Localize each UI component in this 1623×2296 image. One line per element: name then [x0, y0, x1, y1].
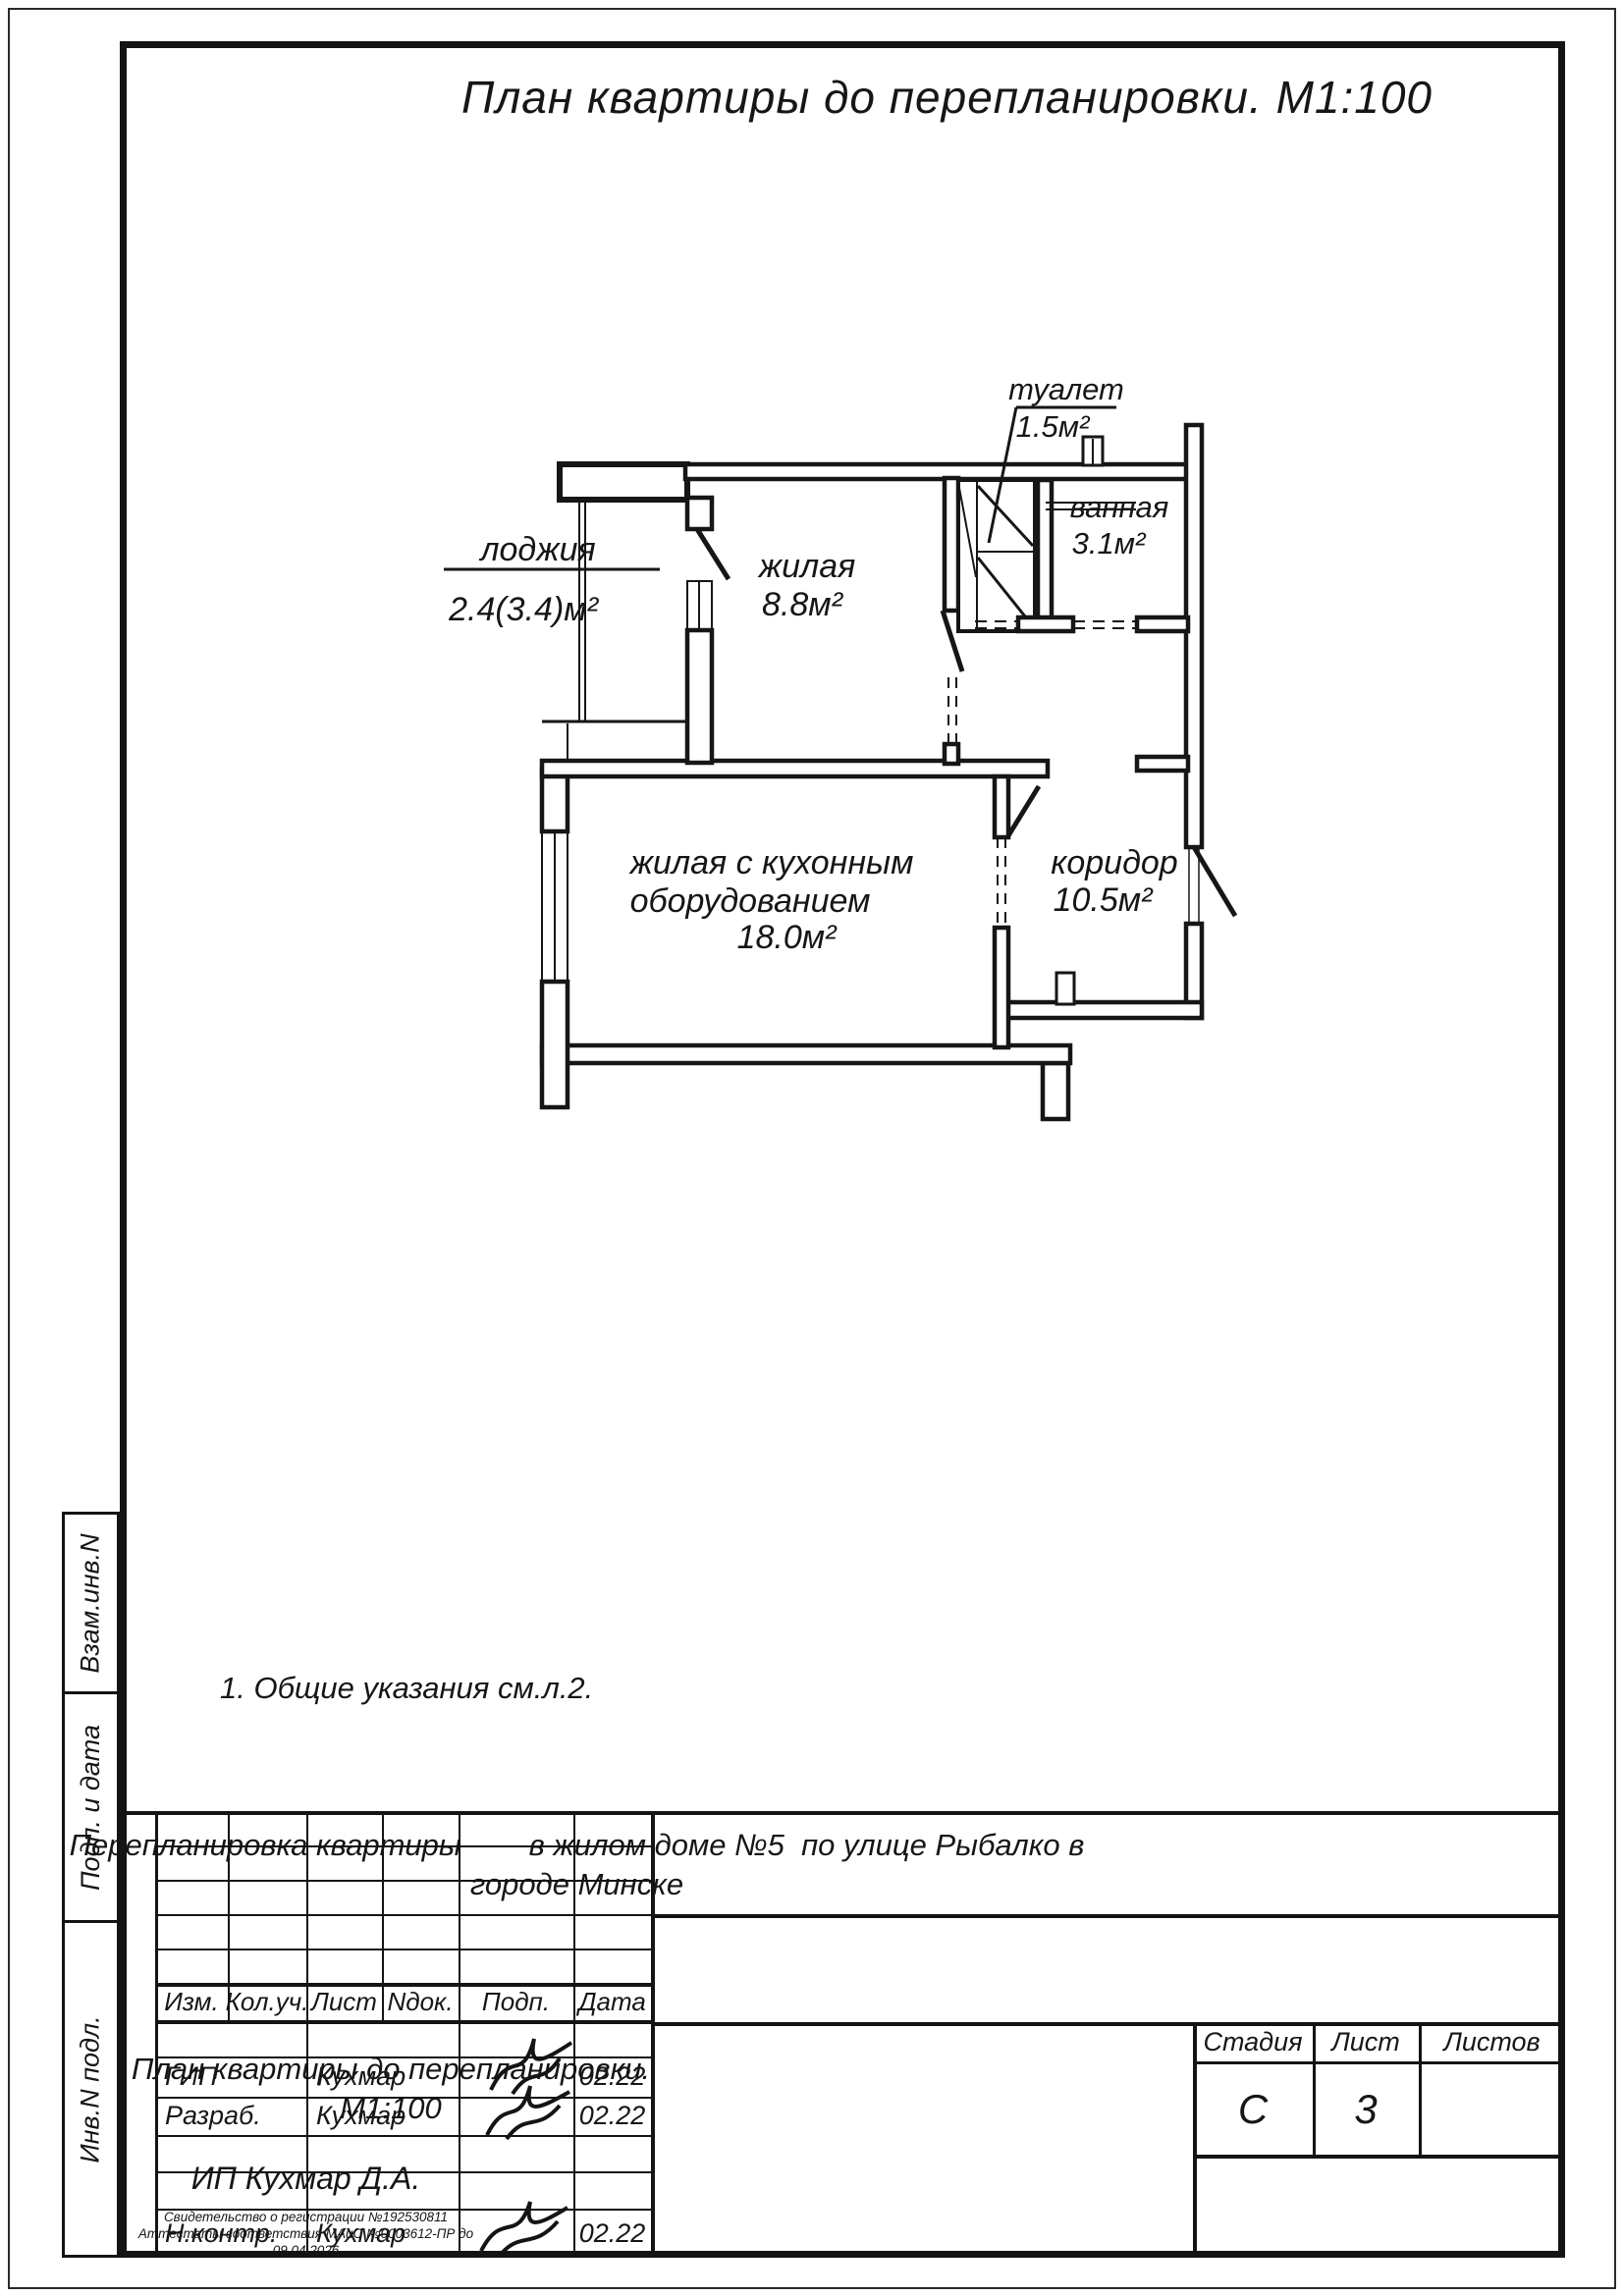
- row-razrab-date: 02.22: [573, 2097, 651, 2135]
- col-header-ndok: Nдок.: [382, 1983, 459, 2020]
- title-block: Изм. Кол.уч. Лист Nдок. Подп. Дата ГИП К…: [120, 1811, 1565, 2258]
- room-label-living-small: жилая: [757, 548, 856, 585]
- margin-box-podp: Подп. и дата: [62, 1691, 120, 1923]
- project-description: Перепланировка квартиры в жилом доме №5 …: [120, 1811, 1034, 1919]
- col-header-podp: Подп.: [459, 1983, 573, 2020]
- stage-value: С: [1193, 2064, 1313, 2155]
- col-header-koluch: Кол.уч.: [228, 1983, 306, 2020]
- row-nkontr-date: 02.22: [573, 2209, 651, 2258]
- row-gip-name: Кухмар: [306, 2056, 459, 2097]
- row-gip-role: ГИП: [155, 2056, 306, 2097]
- stage-header: Стадия: [1193, 2022, 1313, 2061]
- room-area-living-small: 8.8м²: [762, 586, 844, 623]
- row-gip-date: 02.22: [573, 2056, 651, 2097]
- room-label-living-kitchen-2: оборудованием: [630, 882, 871, 920]
- floor-plan-labels: лоджия 2.4(3.4)м² жилая 8.8м² туалет 1.5…: [448, 372, 1178, 956]
- sheets-value: [1419, 2064, 1565, 2155]
- sheet-value: 3: [1313, 2064, 1419, 2155]
- margin-box-inv: Инв.N подл.: [62, 1920, 120, 2258]
- margin-label-inv: Инв.N подл.: [76, 2015, 106, 2163]
- room-area-living-kitchen: 18.0м²: [737, 919, 838, 956]
- room-area-toilet: 1.5м²: [1016, 409, 1091, 444]
- col-header-izm: Изм.: [155, 1983, 228, 2020]
- signature-razrab: [481, 2078, 579, 2143]
- sheets-header: Листов: [1419, 2022, 1565, 2061]
- room-label-toilet: туалет: [1008, 372, 1124, 406]
- room-area-loggia: 2.4(3.4)м²: [448, 591, 599, 628]
- col-header-list: Лист: [306, 1983, 382, 2020]
- row-razrab-name: Кухмар: [306, 2097, 459, 2135]
- row-nkontr-role: Н.контр.: [155, 2209, 306, 2258]
- row-razrab-role: Разраб.: [155, 2097, 306, 2135]
- margin-box-vzam: Взам.инв.N: [62, 1512, 120, 1694]
- margin-label-vzam: Взам.инв.N: [76, 1533, 106, 1673]
- room-area-bathroom: 3.1м²: [1072, 526, 1147, 561]
- room-area-corridor: 10.5м²: [1054, 881, 1154, 919]
- room-label-living-kitchen-1: жилая с кухонным: [628, 844, 914, 881]
- col-header-data: Дата: [573, 1983, 651, 2020]
- signature-nkontr: [475, 2192, 577, 2261]
- row-nkontr-name: Кухмар: [306, 2209, 459, 2258]
- room-label-loggia: лоджия: [478, 531, 595, 568]
- drawing-sheet: { "sheet": { "title": "План квартиры до …: [0, 0, 1623, 2296]
- room-label-corridor: коридор: [1051, 844, 1177, 881]
- sheet-header: Лист: [1313, 2022, 1419, 2061]
- general-note: 1. Общие указания см.л.2.: [220, 1671, 593, 1706]
- room-label-bathroom: ванная: [1070, 490, 1169, 524]
- margin-label-podp: Подп. и дата: [76, 1724, 106, 1890]
